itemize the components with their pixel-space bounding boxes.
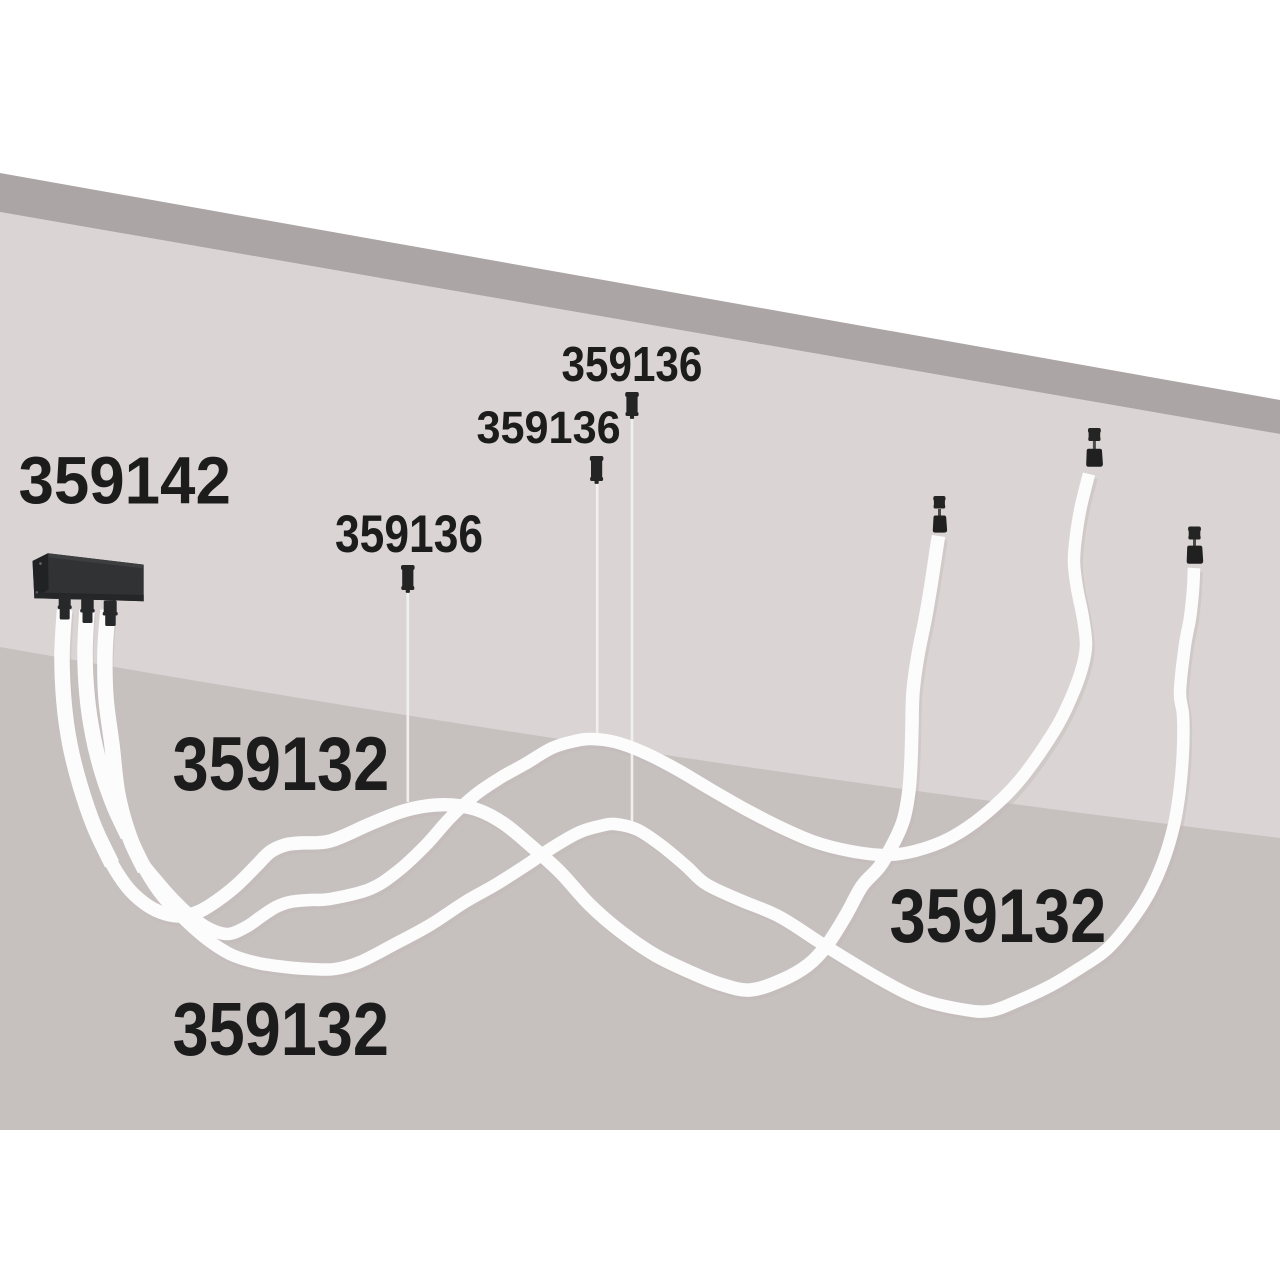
svg-text:359132: 359132 <box>173 988 389 1071</box>
svg-text:359136: 359136 <box>477 403 621 453</box>
svg-text:359132: 359132 <box>890 873 1107 958</box>
svg-text:359136: 359136 <box>335 506 483 564</box>
svg-text:359142: 359142 <box>19 443 231 518</box>
svg-text:359136: 359136 <box>562 336 703 392</box>
svg-text:359132: 359132 <box>173 721 390 806</box>
